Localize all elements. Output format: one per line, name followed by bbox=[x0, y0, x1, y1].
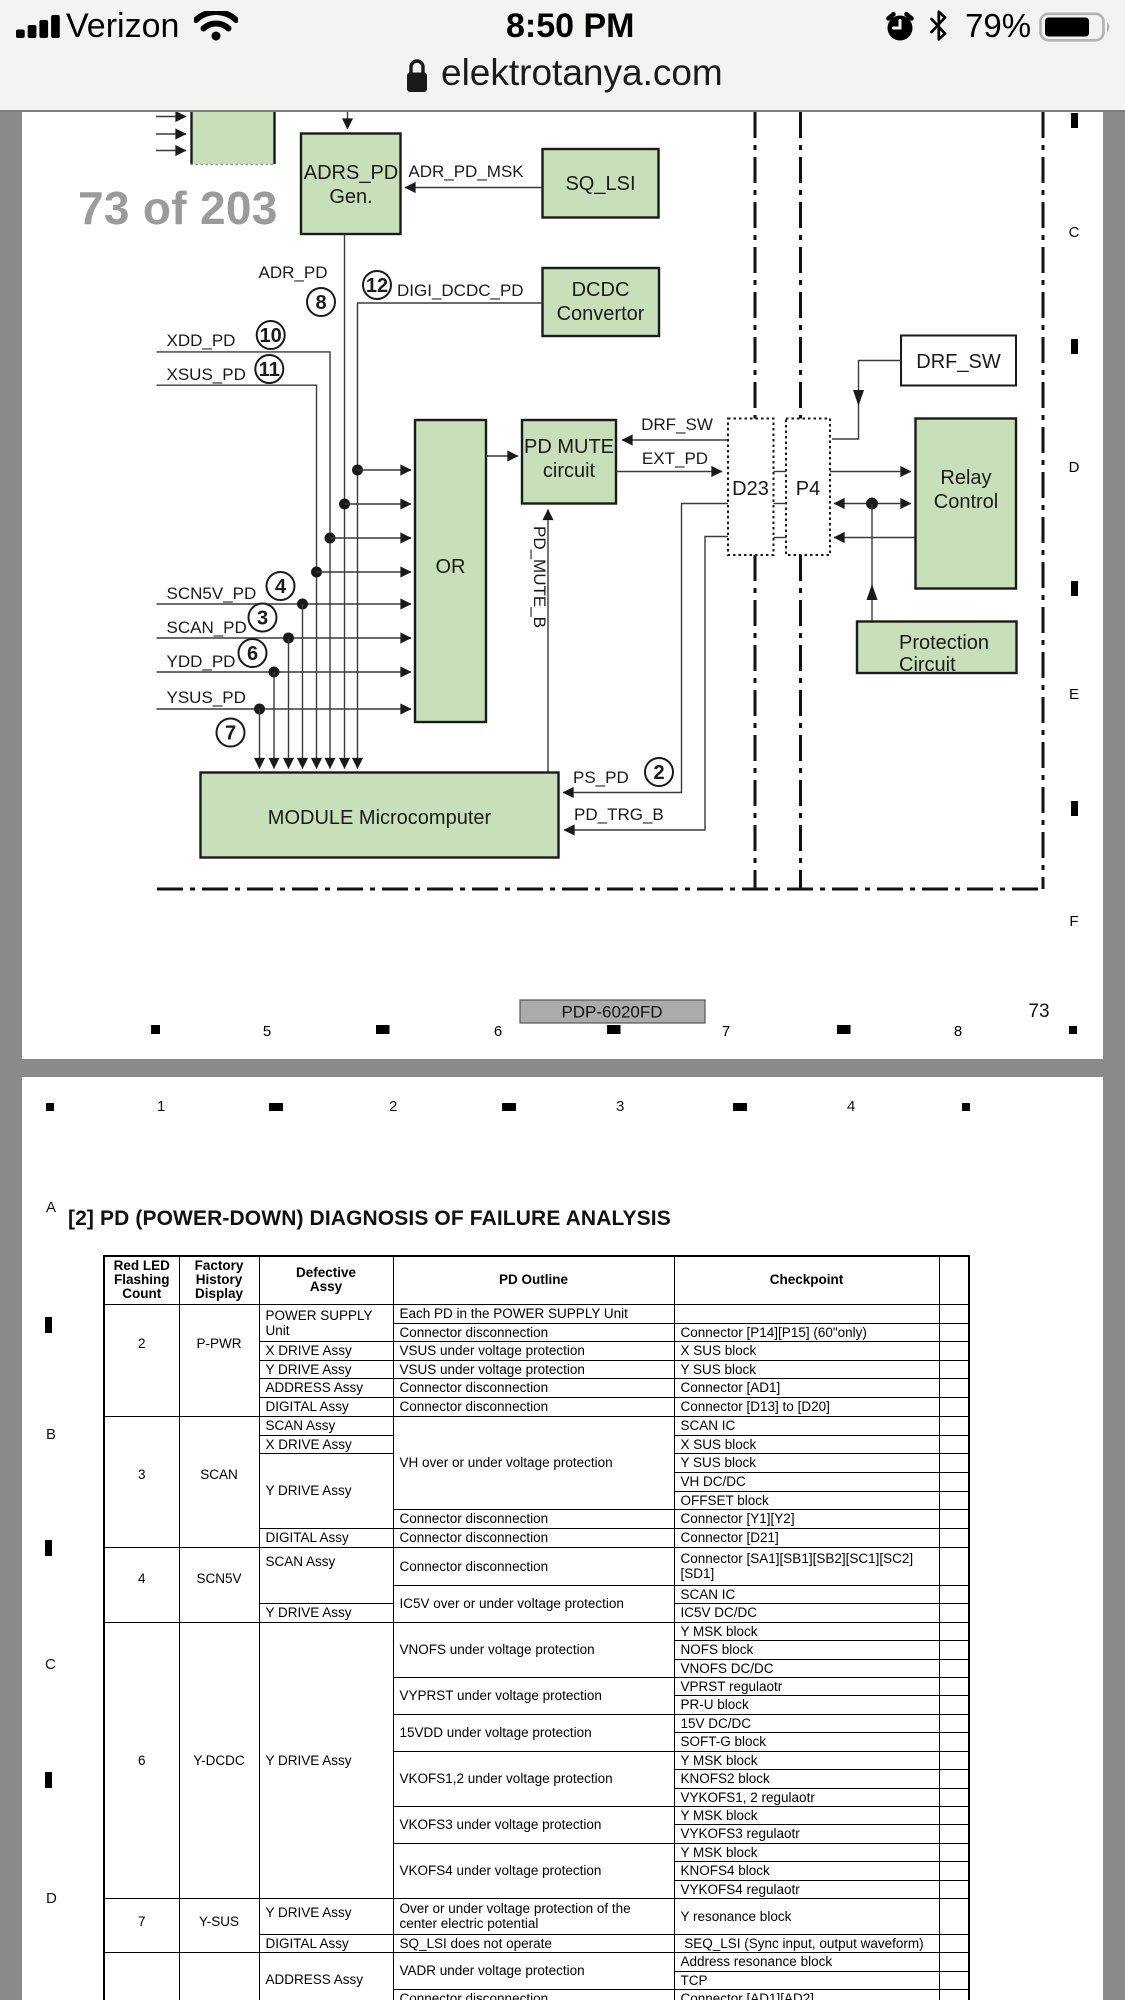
svg-text:3: 3 bbox=[257, 608, 268, 630]
svg-text:E: E bbox=[1069, 686, 1079, 703]
svg-text:10: 10 bbox=[260, 325, 282, 347]
svg-text:F: F bbox=[1069, 913, 1078, 930]
svg-text:DRF_SW: DRF_SW bbox=[916, 351, 1001, 373]
svg-text:7: 7 bbox=[722, 1023, 730, 1040]
svg-text:5: 5 bbox=[263, 1023, 271, 1040]
svg-text:Protection: Protection bbox=[899, 632, 989, 654]
svg-text:Circuit: Circuit bbox=[899, 654, 956, 676]
svg-text:YSUS_PD: YSUS_PD bbox=[167, 688, 246, 707]
svg-text:C: C bbox=[1069, 224, 1080, 241]
svg-text:PD_TRG_B: PD_TRG_B bbox=[574, 805, 664, 824]
svg-text:SCN5V_PD: SCN5V_PD bbox=[167, 584, 257, 603]
svg-text:ADRS_PD: ADRS_PD bbox=[304, 162, 398, 184]
svg-text:EXT_PD: EXT_PD bbox=[642, 449, 708, 468]
svg-text:2: 2 bbox=[653, 762, 664, 784]
svg-text:XSUS_PD: XSUS_PD bbox=[167, 365, 246, 384]
svg-text:D23: D23 bbox=[732, 478, 769, 500]
svg-text:6: 6 bbox=[494, 1023, 502, 1040]
svg-text:73: 73 bbox=[1028, 1001, 1049, 1022]
svg-text:PD MUTE: PD MUTE bbox=[524, 436, 614, 458]
svg-text:YDD_PD: YDD_PD bbox=[167, 652, 236, 671]
svg-text:circuit: circuit bbox=[543, 460, 596, 482]
svg-text:8: 8 bbox=[954, 1023, 962, 1040]
svg-text:ADR_PD: ADR_PD bbox=[259, 263, 328, 282]
svg-text:Control: Control bbox=[934, 491, 998, 513]
svg-text:4: 4 bbox=[275, 576, 287, 598]
svg-text:Gen.: Gen. bbox=[329, 186, 372, 208]
svg-text:6: 6 bbox=[247, 643, 258, 665]
svg-text:7: 7 bbox=[225, 723, 236, 745]
svg-text:Relay: Relay bbox=[940, 467, 991, 489]
svg-text:PS_PD: PS_PD bbox=[573, 768, 629, 787]
svg-text:MODULE Microcomputer: MODULE Microcomputer bbox=[268, 807, 492, 829]
svg-text:DCDC: DCDC bbox=[572, 279, 630, 301]
svg-text:8: 8 bbox=[315, 292, 326, 314]
svg-text:OR: OR bbox=[436, 556, 466, 578]
svg-text:D: D bbox=[1069, 459, 1080, 476]
svg-text:DRF_SW: DRF_SW bbox=[641, 415, 713, 434]
svg-text:DIGI_DCDC_PD: DIGI_DCDC_PD bbox=[397, 281, 524, 300]
svg-text:P4: P4 bbox=[796, 478, 820, 500]
svg-text:PDP-6020FD: PDP-6020FD bbox=[561, 1003, 662, 1022]
svg-text:PD_MUTE_B: PD_MUTE_B bbox=[530, 526, 549, 628]
svg-text:Convertor: Convertor bbox=[557, 303, 645, 325]
svg-text:SQ_LSI: SQ_LSI bbox=[565, 173, 635, 195]
svg-text:11: 11 bbox=[259, 359, 280, 381]
svg-text:12: 12 bbox=[366, 275, 388, 297]
svg-text:SCAN_PD: SCAN_PD bbox=[167, 618, 247, 637]
svg-text:ADR_PD_MSK: ADR_PD_MSK bbox=[408, 162, 524, 181]
svg-text:XDD_PD: XDD_PD bbox=[167, 331, 236, 350]
